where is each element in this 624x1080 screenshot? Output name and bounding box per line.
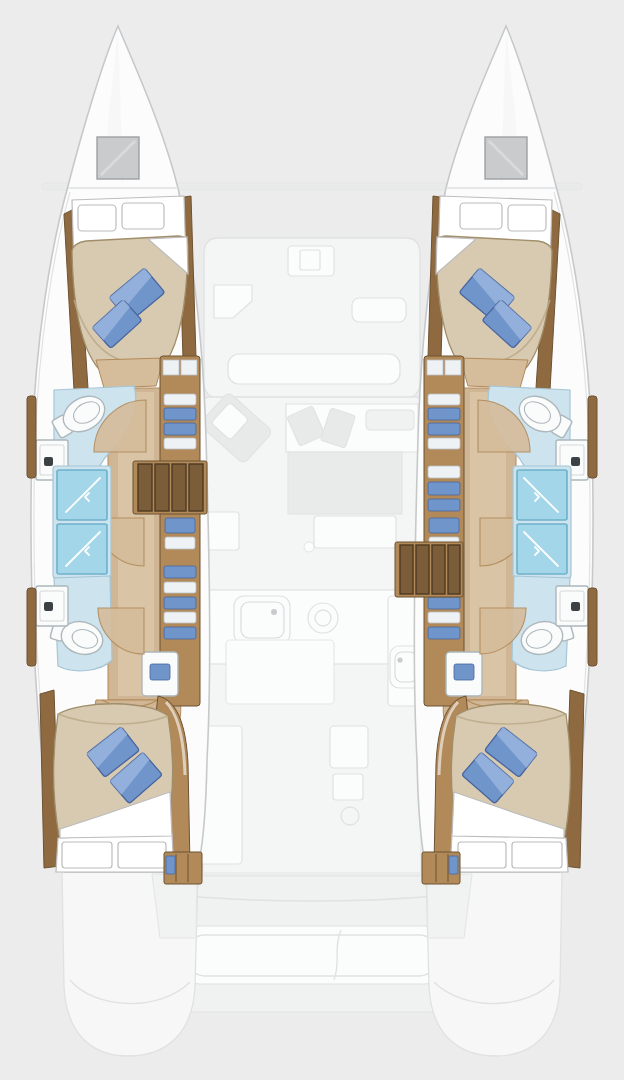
swim-platform bbox=[62, 872, 198, 1056]
stair-tread bbox=[189, 464, 203, 511]
stair-tread bbox=[416, 545, 429, 594]
washbasin-faucet bbox=[44, 457, 53, 466]
catamaran-floor-plan bbox=[0, 0, 624, 1080]
starboard-companionway-stairs bbox=[395, 542, 463, 597]
saloon-coffee-table bbox=[314, 516, 396, 548]
shelf-linen bbox=[164, 582, 196, 593]
locker-item-blue bbox=[166, 856, 175, 874]
swim-platform-starboard bbox=[426, 872, 562, 1056]
head-pillow-left bbox=[78, 205, 116, 231]
forward-cockpit-seat-right bbox=[352, 298, 406, 322]
shelf-linen bbox=[165, 537, 195, 549]
stern-locker bbox=[164, 852, 202, 884]
hullside-trim bbox=[27, 396, 36, 478]
shelf-linen-blue bbox=[164, 627, 196, 639]
shelf-linen-blue bbox=[164, 597, 196, 609]
galley-sink bbox=[234, 596, 290, 644]
shelf-linen bbox=[164, 612, 196, 623]
shelf-linen bbox=[164, 394, 196, 405]
stair-tread bbox=[155, 464, 169, 511]
stair-tread bbox=[138, 464, 152, 511]
galley-faucet bbox=[271, 609, 277, 615]
port-companionway-stairs bbox=[133, 461, 207, 514]
shelf-linen bbox=[428, 466, 460, 478]
cabinet-item-blue bbox=[150, 664, 170, 680]
shelf-linen-blue bbox=[165, 518, 195, 533]
shelf-linen-blue bbox=[164, 408, 196, 420]
berth-foot-step bbox=[96, 358, 164, 388]
forward-cockpit-bench bbox=[228, 354, 400, 384]
shelf-linen bbox=[164, 438, 196, 449]
top-locker-1 bbox=[163, 360, 179, 375]
stove-burner bbox=[308, 603, 338, 633]
shower-compartments bbox=[53, 466, 111, 578]
foot-pillow-left bbox=[62, 842, 112, 868]
anchor-locker-lid bbox=[300, 250, 320, 270]
stair-tread bbox=[172, 464, 186, 511]
galley-island bbox=[226, 640, 334, 704]
shelf-linen-blue bbox=[428, 482, 460, 495]
aft-cabinet-small-2 bbox=[333, 774, 363, 800]
side-sink-faucet bbox=[397, 657, 402, 662]
head-pillow-right bbox=[122, 203, 164, 229]
aft-cabinet-small bbox=[330, 726, 368, 768]
hullside-trim bbox=[27, 588, 36, 666]
bow-hatch bbox=[97, 137, 139, 179]
shelf-linen-blue bbox=[164, 566, 196, 578]
sofa-armrest bbox=[366, 410, 414, 430]
starboard-shelf-patch bbox=[428, 466, 460, 511]
foot-pillow-right bbox=[118, 842, 166, 868]
shelf-linen-blue bbox=[428, 499, 460, 511]
washbasin-faucet bbox=[44, 602, 53, 611]
aft-cabin bbox=[40, 690, 190, 872]
nav-seat bbox=[205, 512, 239, 550]
top-locker-2 bbox=[181, 360, 197, 375]
galley bbox=[206, 590, 422, 706]
table-leg bbox=[304, 542, 314, 552]
stair-tread bbox=[400, 545, 413, 594]
floor-plan-canvas bbox=[0, 0, 624, 1080]
shelf-linen-blue bbox=[164, 423, 196, 435]
stair-tread bbox=[448, 545, 460, 594]
forward-cockpit bbox=[204, 238, 420, 398]
stair-tread bbox=[432, 545, 445, 594]
saloon-table bbox=[288, 452, 402, 514]
aft-cabinets bbox=[184, 722, 420, 872]
